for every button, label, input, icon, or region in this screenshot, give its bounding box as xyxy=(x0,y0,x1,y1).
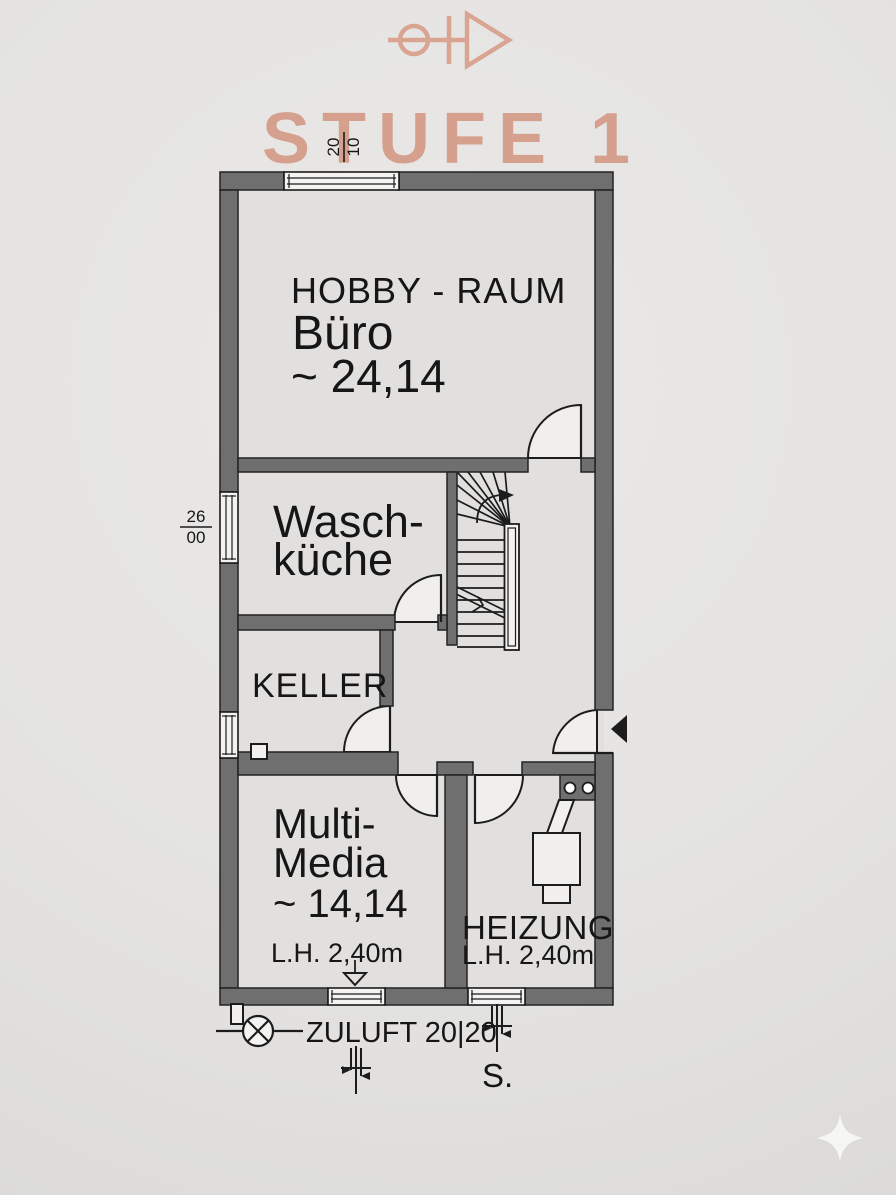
wall xyxy=(447,472,457,645)
entrance-arrow-icon xyxy=(611,715,627,743)
room-multimedia-area: ~ 14,14 xyxy=(273,882,408,926)
wall xyxy=(525,988,613,1005)
floorplan-canvas: STUFE 1 REAL ESTATE xyxy=(0,0,896,1195)
svg-text:10: 10 xyxy=(344,138,363,157)
damper-icon xyxy=(341,1046,371,1094)
dimension-left-window: 26 00 xyxy=(180,507,212,547)
room-hobby-subtitle: HOBBY - RAUM xyxy=(291,270,566,311)
compass-arrow-icon xyxy=(388,14,509,66)
stair-handrail xyxy=(505,524,520,650)
wall xyxy=(220,172,284,190)
duct-marker xyxy=(251,744,267,759)
wall xyxy=(238,615,395,630)
wall xyxy=(220,190,238,492)
svg-text:20: 20 xyxy=(324,138,343,157)
wall xyxy=(220,563,238,712)
room-keller-name: KELLER xyxy=(252,667,388,705)
wall xyxy=(595,753,613,988)
wall xyxy=(220,758,238,988)
wall xyxy=(399,172,613,190)
wall xyxy=(522,762,595,775)
svg-text:00: 00 xyxy=(187,528,206,547)
room-wasch-line2: küche xyxy=(273,534,393,585)
wall xyxy=(220,988,328,1005)
room-hobby-area: ~ 24,14 xyxy=(291,350,446,402)
south-label: S. xyxy=(482,1057,513,1094)
window-bottom-right xyxy=(468,988,525,1005)
wall xyxy=(438,615,447,630)
window-left-upper xyxy=(220,492,238,563)
room-multimedia-line2: Media xyxy=(273,839,388,886)
svg-text:26: 26 xyxy=(187,507,206,526)
wall xyxy=(238,458,528,472)
room-multimedia-height: L.H. 2,40m xyxy=(271,938,403,968)
wall xyxy=(437,762,473,775)
sparkle-star-icon xyxy=(817,1115,863,1161)
brand-title: STUFE 1 xyxy=(262,99,642,179)
supply-air-label: ZULUFT 20|20 xyxy=(306,1017,497,1049)
wall xyxy=(581,458,595,472)
window-bottom-left xyxy=(328,988,385,1005)
window-top xyxy=(284,172,399,190)
room-heizung-height: L.H. 2,40m xyxy=(462,940,594,970)
lamp-symbol-icon xyxy=(216,1016,303,1046)
window-left-lower xyxy=(220,712,238,758)
wall-stub xyxy=(231,1004,243,1024)
wall xyxy=(385,988,468,1005)
wall xyxy=(595,190,613,710)
